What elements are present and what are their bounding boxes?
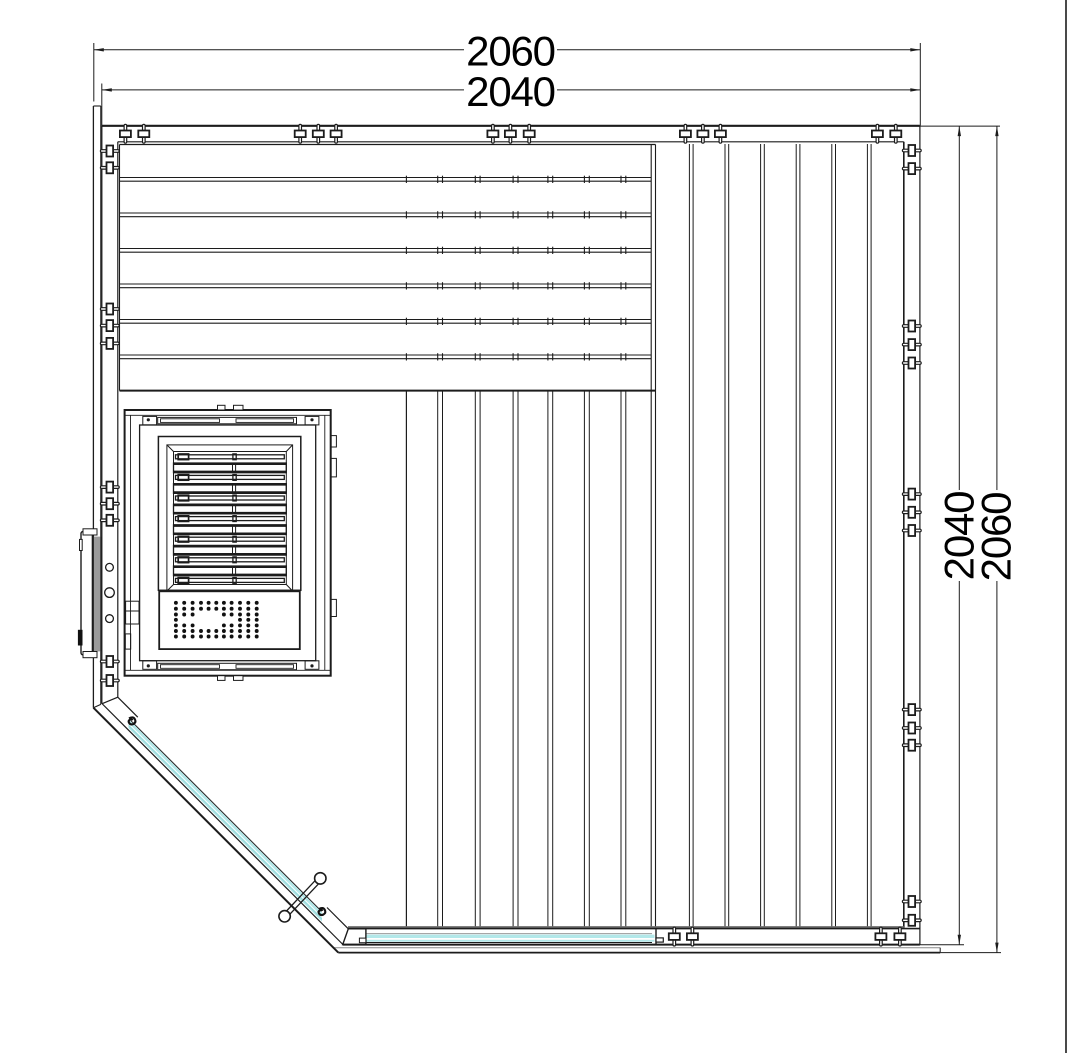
- svg-text:2060: 2060: [973, 493, 1020, 582]
- svg-text:2040: 2040: [466, 68, 555, 115]
